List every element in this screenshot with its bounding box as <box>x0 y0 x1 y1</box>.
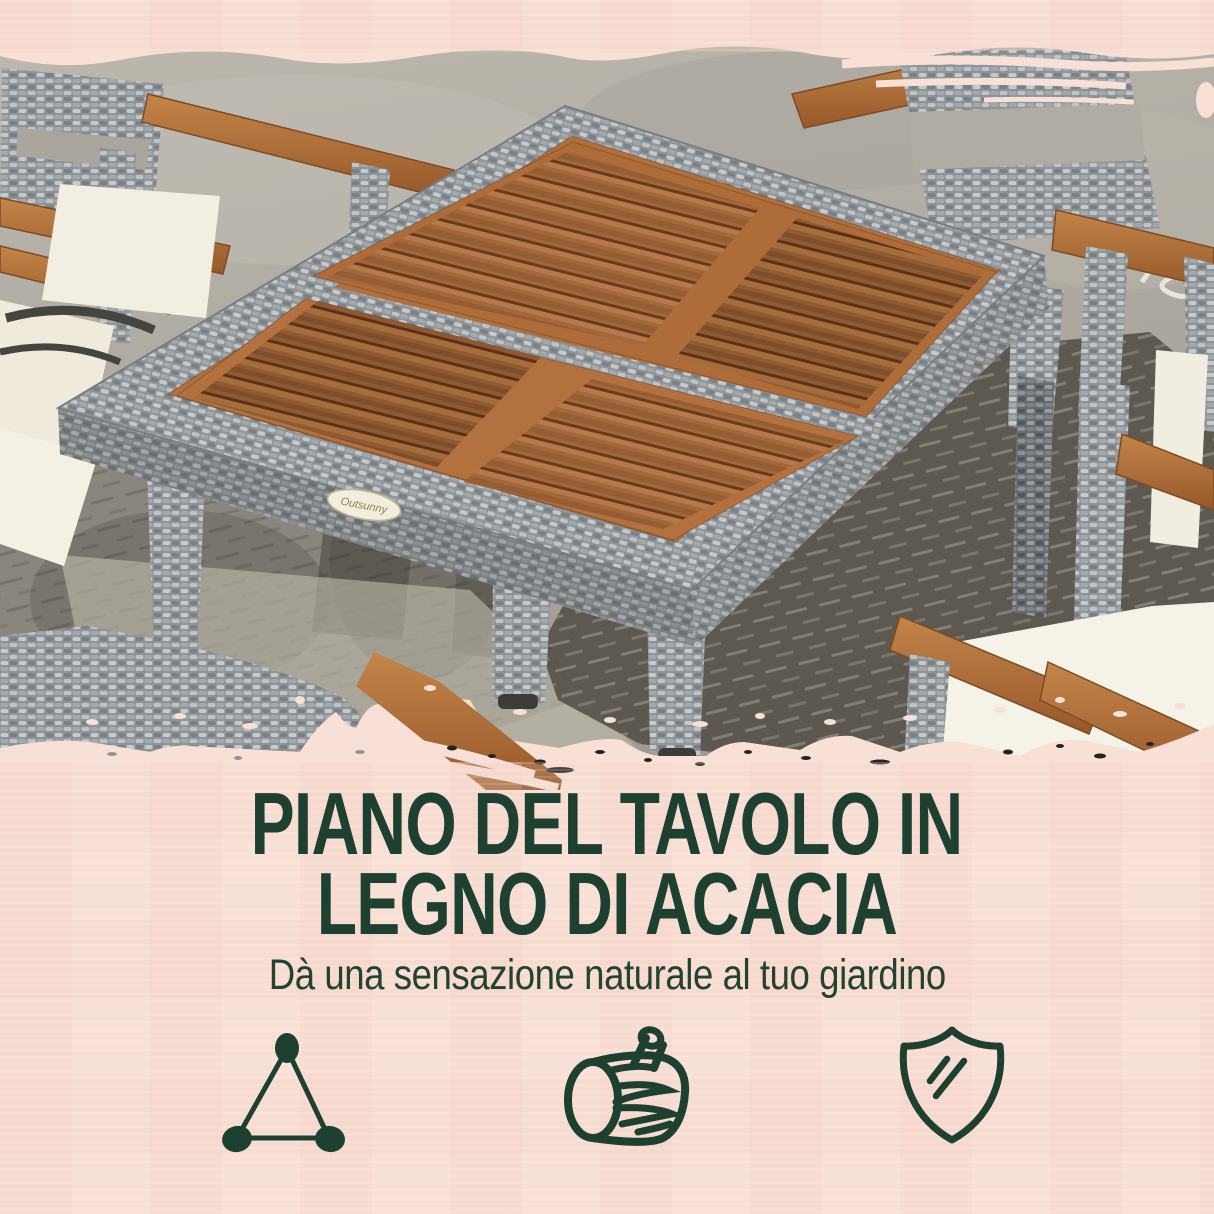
product-infographic: Outsunny <box>0 0 1214 1214</box>
headline-line-1: PIANO DEL TAVOLO IN <box>251 784 963 864</box>
wood-log-icon <box>550 1008 700 1158</box>
subheadline: Dà una sensazione naturale al tuo giardi… <box>0 949 1214 1001</box>
backrest-slot <box>908 104 1145 170</box>
shield-icon <box>894 1022 1014 1148</box>
seat-cushion <box>42 184 220 318</box>
headline-line-2: LEGNO DI ACACIA <box>317 864 897 944</box>
product-photo: Outsunny <box>0 0 1214 790</box>
page-title: PIANO DEL TAVOLO IN LEGNO DI ACACIA <box>0 784 1214 944</box>
stability-triangle-icon <box>222 1028 350 1156</box>
